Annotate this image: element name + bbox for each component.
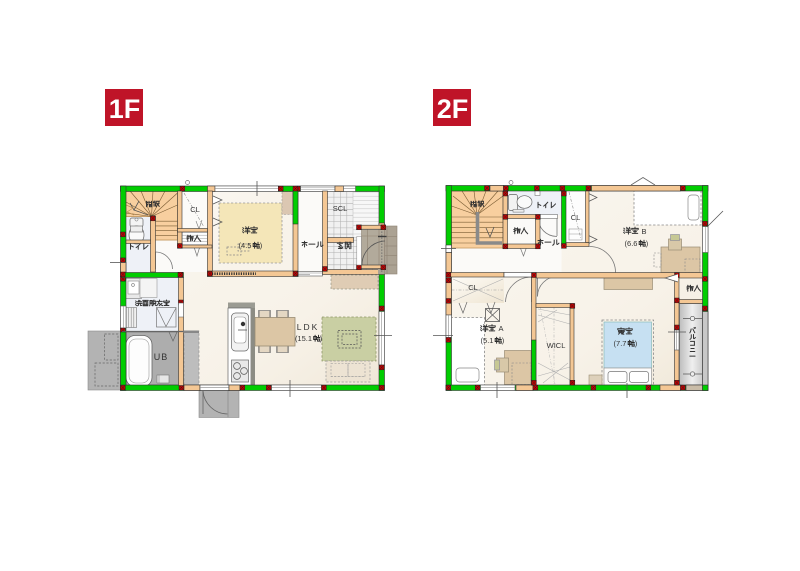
svg-text:CL: CL	[468, 283, 478, 292]
svg-text:LDK: LDK	[297, 322, 320, 332]
svg-text:WICL: WICL	[547, 341, 566, 350]
svg-text:A: A	[498, 324, 503, 333]
svg-text:(15.1: (15.1	[295, 334, 312, 343]
svg-text:1F: 1F	[109, 94, 141, 124]
svg-text:2F: 2F	[437, 94, 469, 124]
svg-text:(4.5: (4.5	[239, 241, 252, 250]
svg-text:(6.6: (6.6	[625, 239, 638, 248]
svg-text:B: B	[641, 227, 646, 236]
svg-text:SCL: SCL	[333, 204, 348, 213]
svg-text:CL: CL	[571, 213, 581, 222]
svg-text:(7.7: (7.7	[614, 339, 627, 348]
svg-text:(5.1: (5.1	[481, 336, 494, 345]
svg-text:CL: CL	[190, 205, 200, 214]
svg-text:UB: UB	[154, 352, 169, 362]
